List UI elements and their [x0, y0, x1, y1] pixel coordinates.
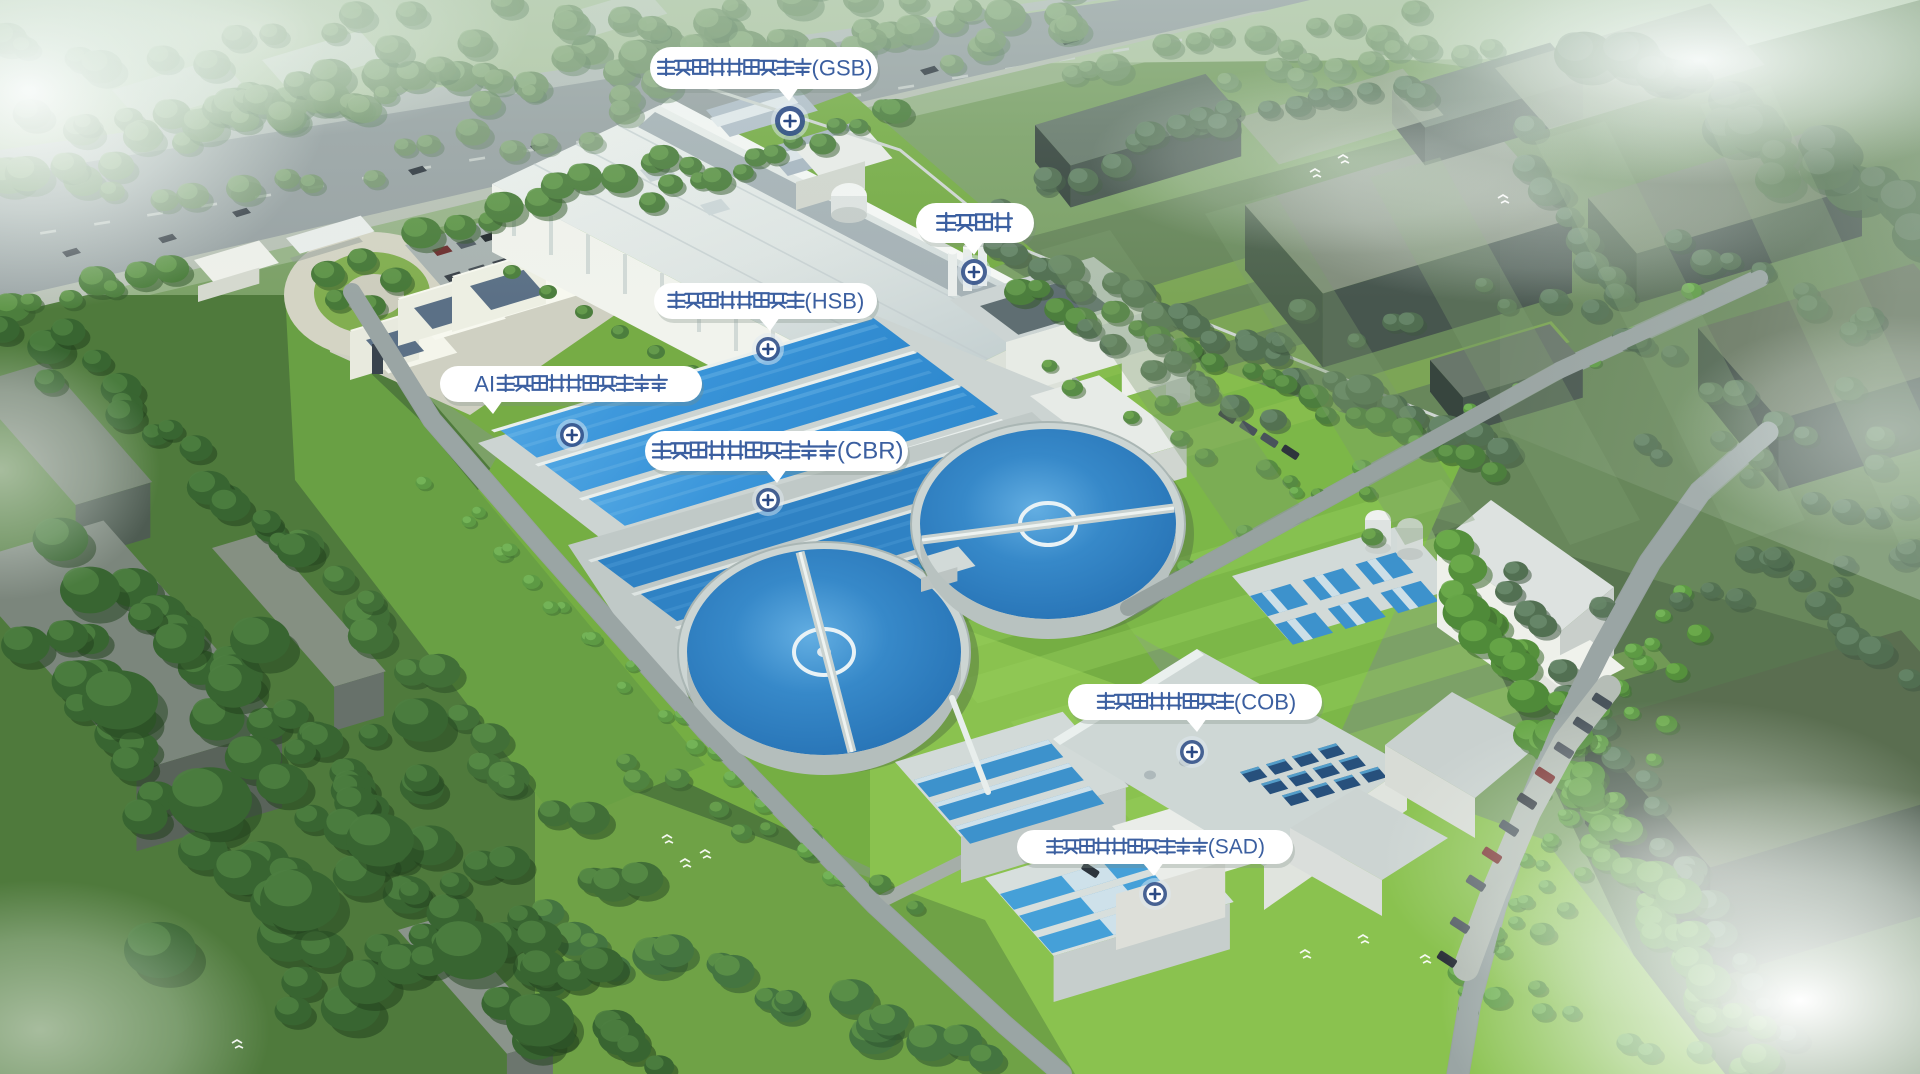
svg-text:(SAD): (SAD) [1208, 836, 1265, 859]
svg-text:(HSB): (HSB) [804, 289, 864, 314]
svg-text:AI: AI [474, 372, 495, 397]
svg-text:(GSB): (GSB) [812, 56, 873, 81]
svg-text:(COB): (COB) [1234, 690, 1296, 715]
svg-text:(CBR): (CBR) [837, 438, 904, 465]
